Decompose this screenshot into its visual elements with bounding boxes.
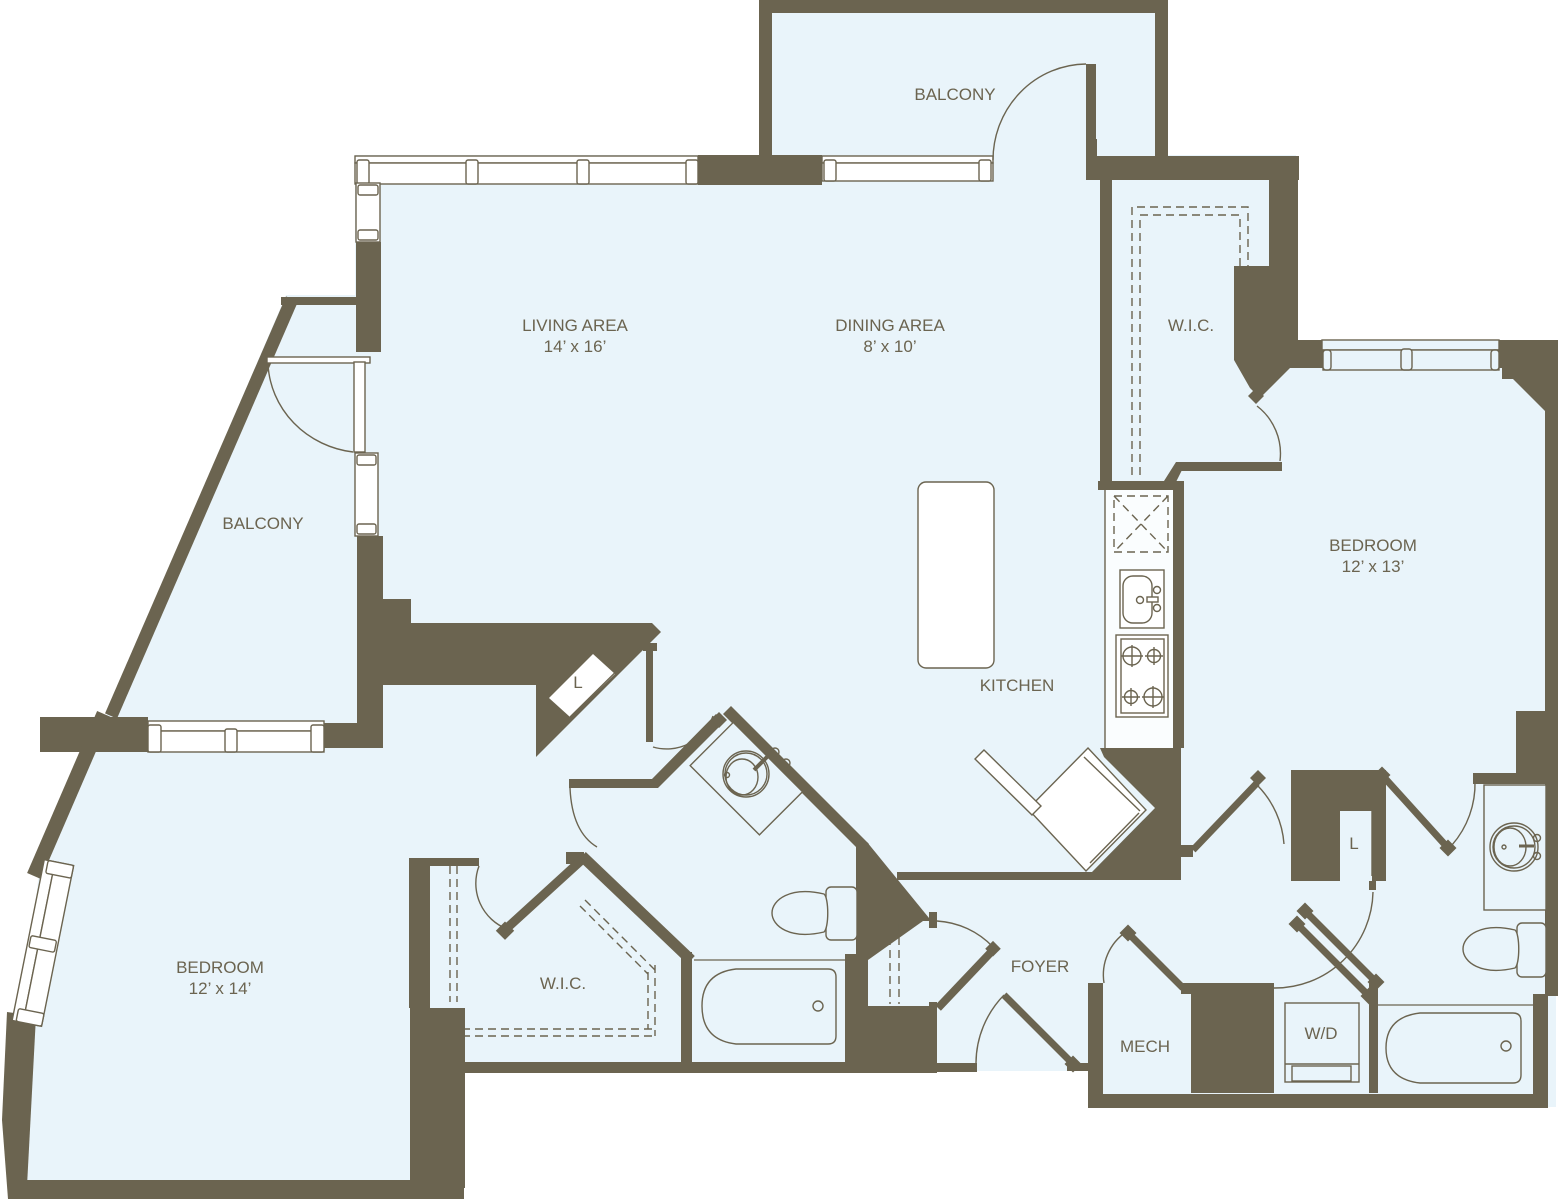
svg-text:FOYER: FOYER xyxy=(1011,957,1070,976)
svg-text:12’ x 13’: 12’ x 13’ xyxy=(1342,557,1405,576)
svg-text:8’ x 10’: 8’ x 10’ xyxy=(863,337,916,356)
svg-text:BEDROOM: BEDROOM xyxy=(176,958,264,977)
svg-text:12’ x 14’: 12’ x 14’ xyxy=(189,979,252,998)
svg-text:BALCONY: BALCONY xyxy=(222,514,303,533)
svg-text:W.I.C.: W.I.C. xyxy=(1168,316,1214,335)
svg-text:MECH: MECH xyxy=(1120,1037,1170,1056)
svg-text:DINING AREA: DINING AREA xyxy=(835,316,945,335)
svg-text:BALCONY: BALCONY xyxy=(914,85,995,104)
svg-text:W.I.C.: W.I.C. xyxy=(540,974,586,993)
svg-text:W/D: W/D xyxy=(1304,1024,1337,1043)
svg-text:L: L xyxy=(1349,834,1358,853)
svg-text:BEDROOM: BEDROOM xyxy=(1329,536,1417,555)
svg-text:14’ x 16’: 14’ x 16’ xyxy=(544,337,607,356)
svg-text:KITCHEN: KITCHEN xyxy=(980,676,1055,695)
svg-text:L: L xyxy=(573,673,582,692)
svg-text:LIVING AREA: LIVING AREA xyxy=(522,316,628,335)
